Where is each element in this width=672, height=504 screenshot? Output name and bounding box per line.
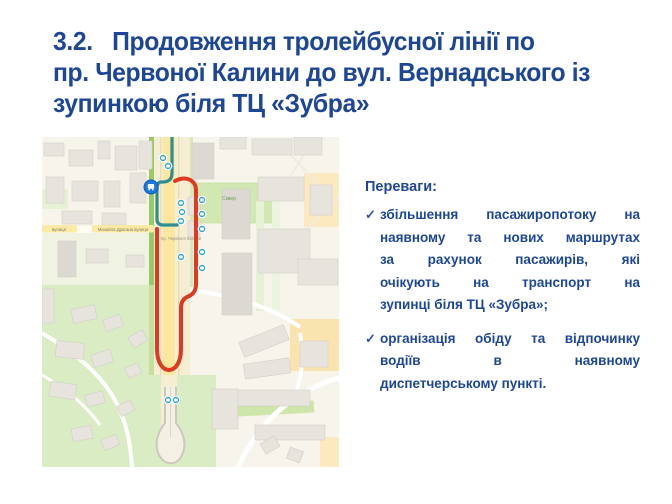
checkmark-icon: ✓ [365,328,380,396]
bus-stop-icon [159,154,167,162]
advantage-line: наявному та нових маршрутах [380,227,640,250]
bus-stop-icon [177,199,185,207]
advantages-heading: Переваги: [365,178,642,196]
map-canvas: вулиця Михайла Драгана вулиця пр. Червон… [42,137,339,467]
title-line-3: зупинкою біля ТЦ «Зубра» [53,88,590,119]
advantage-line: диспетчерському пункті. [380,373,640,396]
advantage-line: водіїв в наявному [380,350,640,373]
bus-stop-icon [198,225,206,233]
street-label-left: вулиця [52,227,67,232]
advantage-text: організація обіду та відпочинку водіїв в… [380,328,640,396]
checkmark-icon: ✓ [365,204,380,317]
advantage-text: збільшення пасажиропотоку на наявному та… [380,204,640,317]
bus-stop-icon [164,162,172,170]
route-map: вулиця Михайла Драгана вулиця пр. Червон… [42,137,339,467]
bus-stop-icon [172,396,180,404]
advantage-item: ✓ організація обіду та відпочинку водіїв… [365,328,642,396]
bus-stop-icon [177,217,185,225]
advantages-panel: Переваги: ✓ збільшення пасажиропотоку на… [365,178,642,395]
title-line-2: пр. Червоної Калини до вул. Вернадського… [53,57,590,88]
bus-stop-icon [198,248,206,256]
advantage-line: зупинці біля ТЦ «Зубра»; [380,294,640,317]
title-line-1: 3.2. Продовження тролейбусної лінії по [53,26,590,57]
bus-stop-icon [177,253,185,261]
street-label-main: Михайла Драгана вулиця [98,227,149,232]
bus-stop-icon [198,196,206,204]
bus-stop-icon [198,264,206,272]
advantage-item: ✓ збільшення пасажиропотоку на наявному … [365,204,642,317]
park-label: Сквер [222,196,236,202]
advantage-line: збільшення пасажиропотоку на [380,204,640,227]
bus-stop-icon [198,210,206,218]
advantage-line: очікують на транспорт на [380,272,640,295]
advantage-line: за рахунок пасажирів, які [380,249,640,272]
page-title: 3.2. Продовження тролейбусної лінії по п… [53,26,590,119]
terminal-bus-marker-icon [144,180,158,194]
bus-stop-icon [178,208,186,216]
bus-stop-icon [164,396,172,404]
slide: 3.2. Продовження тролейбусної лінії по п… [0,0,672,504]
advantage-line: організація обіду та відпочинку [380,328,640,351]
